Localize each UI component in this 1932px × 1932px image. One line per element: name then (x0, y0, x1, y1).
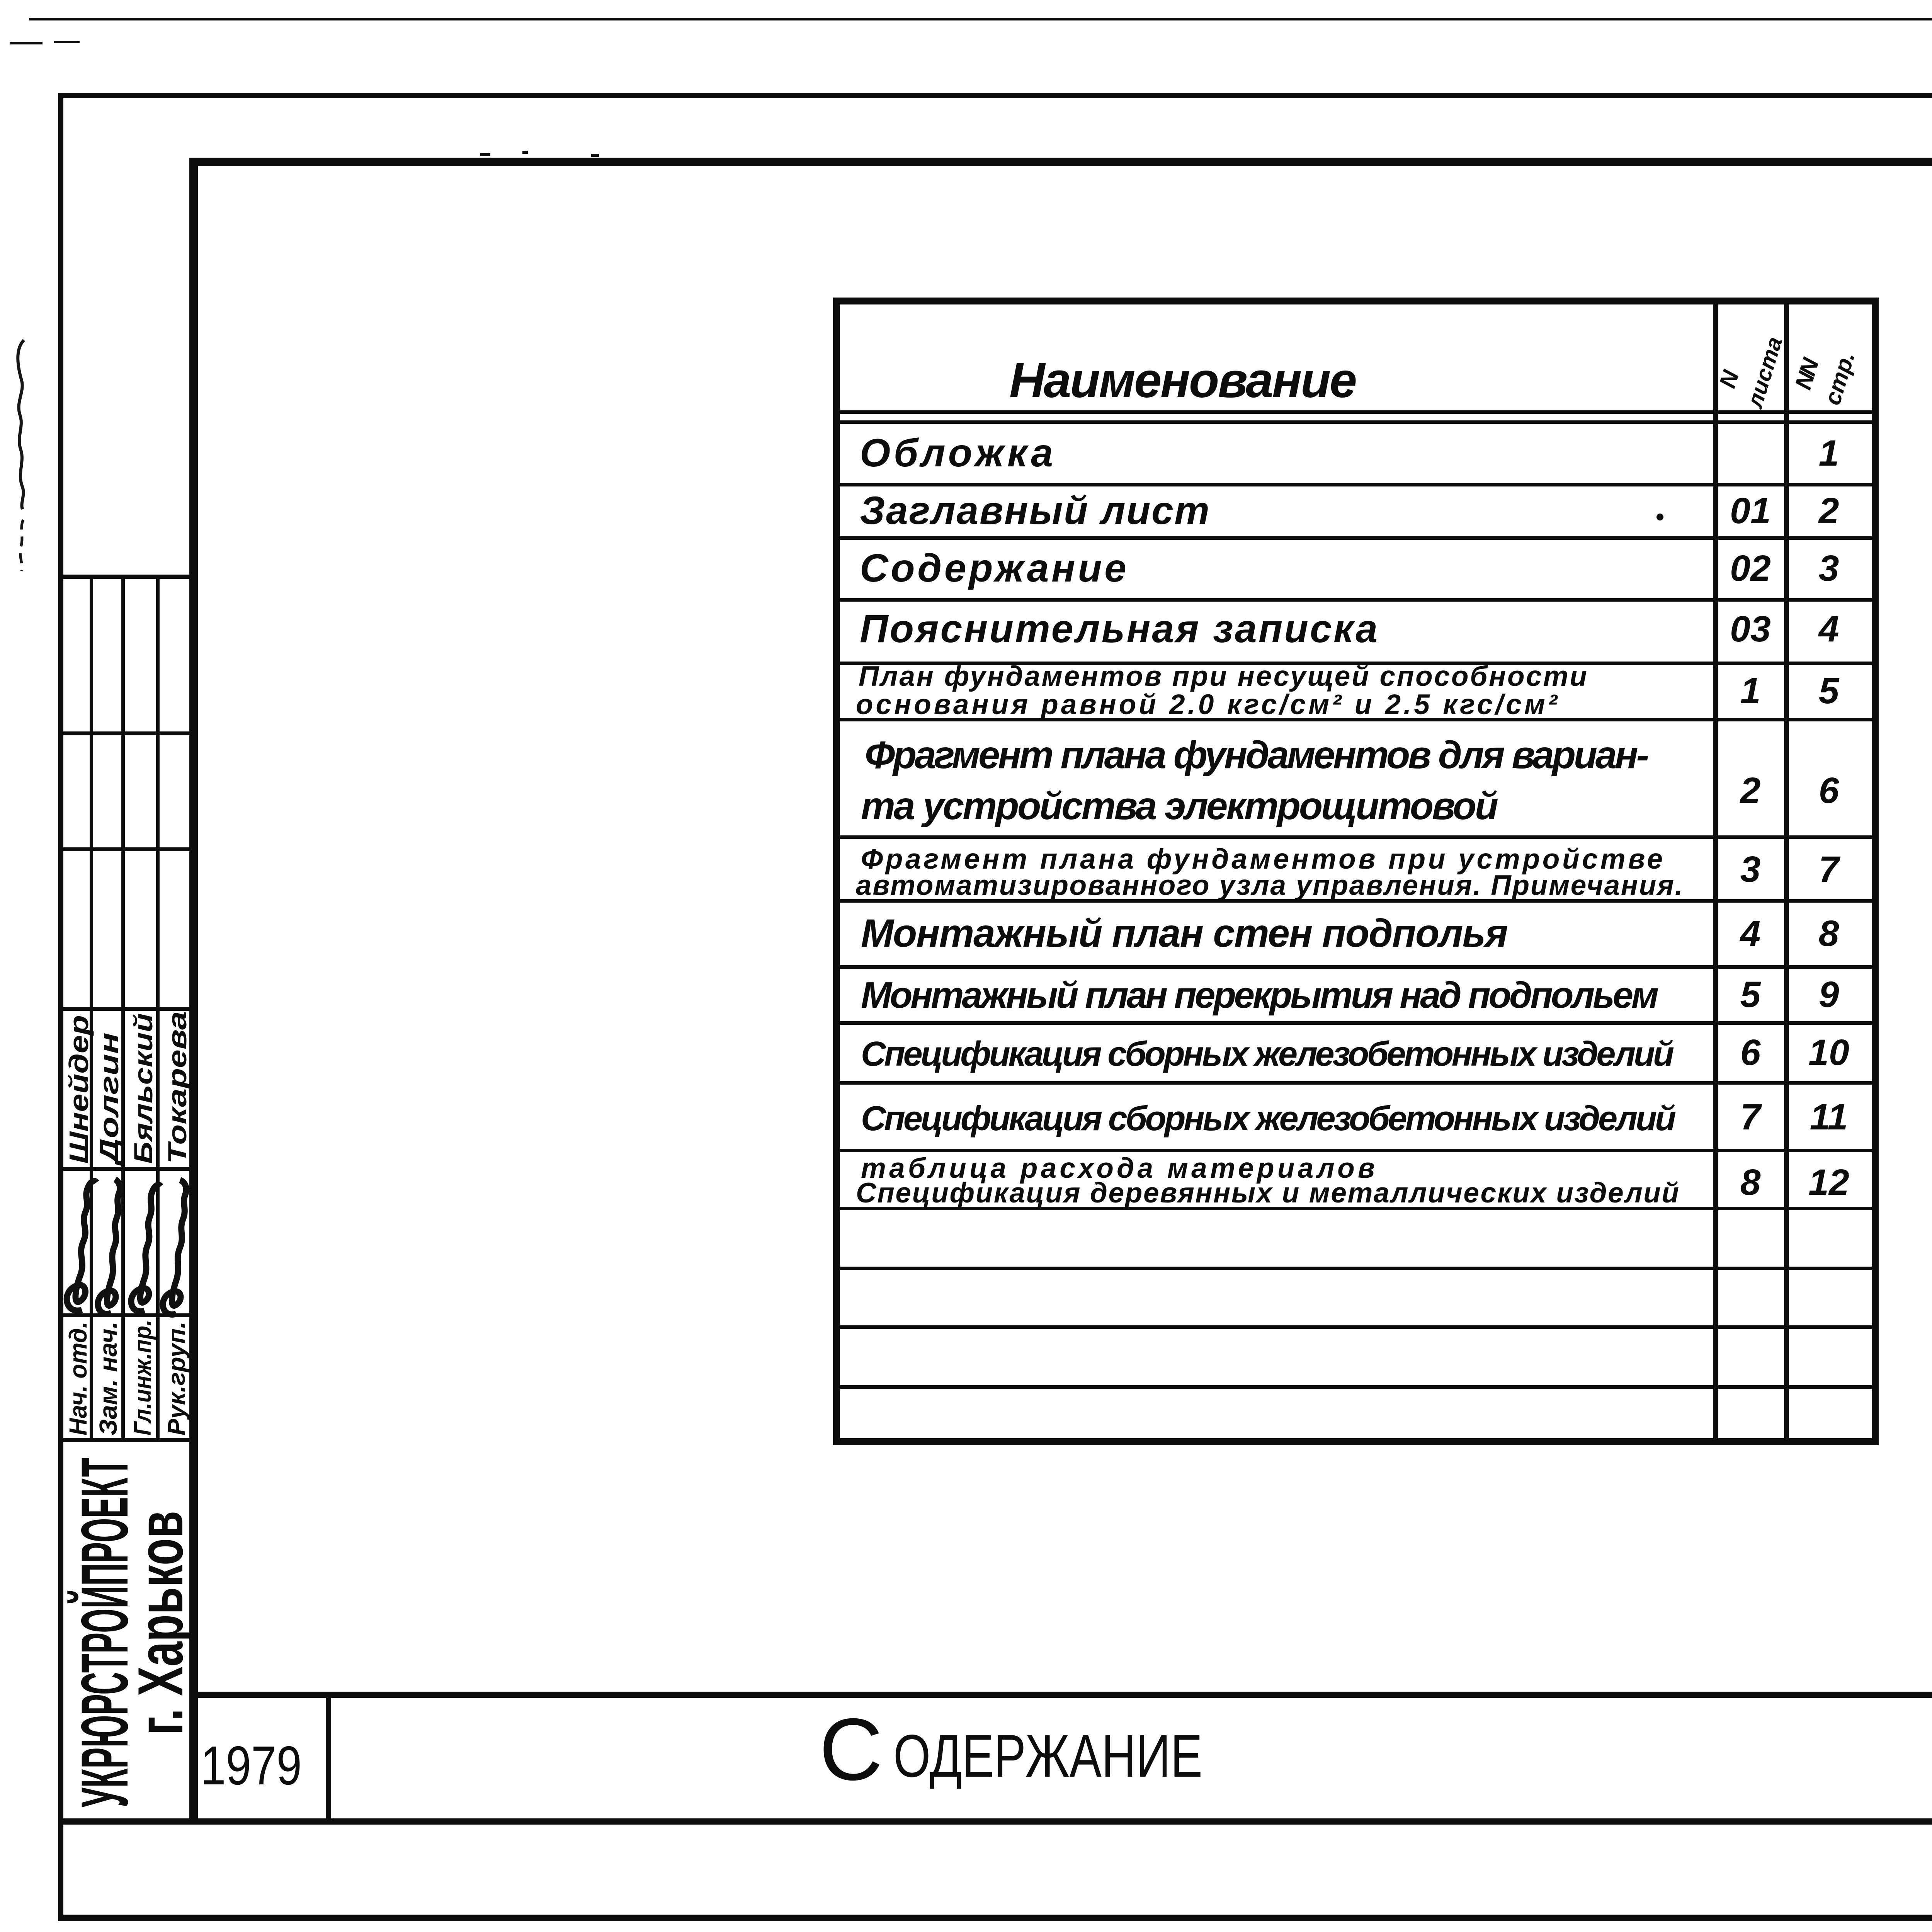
svg-text:Пояснительная записка: Пояснительная записка (860, 607, 1378, 651)
svg-text:С: С (819, 1701, 883, 1799)
svg-text:10: 10 (1808, 1032, 1849, 1073)
svg-text:8: 8 (1740, 1162, 1761, 1203)
svg-text:2: 2 (1740, 770, 1761, 811)
svg-text:8: 8 (1819, 913, 1839, 954)
svg-text:4: 4 (1740, 913, 1761, 954)
svg-text:Спецификация сборных железобет: Спецификация сборных железобетонных изде… (861, 1035, 1674, 1073)
svg-text:Шнейдер: Шнейдер (64, 1015, 94, 1164)
svg-text:3: 3 (1740, 849, 1761, 890)
svg-text:5: 5 (1819, 670, 1840, 711)
svg-text:01: 01 (1730, 490, 1771, 531)
svg-text:ОДЕРЖАНИЕ: ОДЕРЖАНИЕ (893, 1723, 1202, 1790)
svg-text:Содержание: Содержание (860, 546, 1126, 590)
svg-text:6: 6 (1819, 770, 1840, 811)
svg-text:7: 7 (1819, 849, 1841, 890)
svg-text:Обложка: Обложка (860, 431, 1053, 475)
svg-text:Фрагмент плана фундаментов для: Фрагмент плана фундаментов для вариан- (865, 733, 1649, 777)
svg-text:стр.: стр. (1819, 349, 1860, 408)
svg-text:Бяльский: Бяльский (129, 1013, 158, 1164)
svg-text:02: 02 (1730, 548, 1771, 589)
svg-text:Монтажный план стен подполь: Монтажный план стен подполья (861, 911, 1508, 955)
svg-text:г. Харьков: г. Харьков (125, 1511, 196, 1735)
svg-text:Токарева: Токарева (163, 1011, 192, 1164)
svg-text:Нач. отд.: Нач. отд. (64, 1321, 92, 1435)
svg-text:Долгин: Долгин (94, 1032, 124, 1167)
svg-text:3: 3 (1819, 548, 1839, 589)
svg-text:N: N (1714, 367, 1744, 391)
svg-text:4: 4 (1818, 609, 1839, 650)
svg-text:12: 12 (1808, 1162, 1849, 1203)
svg-text:6: 6 (1740, 1032, 1761, 1073)
svg-text:Рук.груп.: Рук.груп. (163, 1321, 190, 1435)
svg-text:1979: 1979 (201, 1735, 302, 1796)
svg-text:Гл.инж.пр.: Гл.инж.пр. (129, 1320, 156, 1435)
svg-text:Зам. нач.: Зам. нач. (94, 1321, 122, 1435)
svg-text:та устройства электрощитовой: та устройства электрощитовой (861, 784, 1498, 828)
svg-text:NN: NN (1790, 354, 1824, 392)
svg-text:Спецификация сборных железобет: Спецификация сборных железобетонных изде… (861, 1099, 1676, 1138)
svg-text:Спецификация деревянных и мета: Спецификация деревянных и металлических … (856, 1177, 1679, 1209)
svg-text:План фундаментов при несущей с: План фундаментов при несущей способности (859, 661, 1587, 692)
svg-text:1: 1 (1740, 670, 1761, 711)
svg-text:9: 9 (1819, 974, 1839, 1015)
svg-text:1: 1 (1819, 433, 1839, 474)
svg-text:основания равной 2.0 кгс/см² и: основания равной 2.0 кгс/см² и 2.5 кгс/с… (856, 689, 1558, 720)
svg-text:11: 11 (1810, 1097, 1848, 1138)
svg-text:5: 5 (1740, 974, 1761, 1015)
svg-text:листа: листа (1742, 334, 1787, 412)
svg-text:Заглавный лист: Заглавный лист (860, 488, 1209, 532)
svg-text:2: 2 (1818, 490, 1839, 531)
svg-text:03: 03 (1730, 609, 1771, 650)
svg-text:7: 7 (1740, 1097, 1762, 1138)
svg-text:Наименование: Наименование (1009, 353, 1357, 408)
svg-text:Монтажный план перекрытия над: Монтажный план перекрытия над подпольем (861, 975, 1659, 1016)
